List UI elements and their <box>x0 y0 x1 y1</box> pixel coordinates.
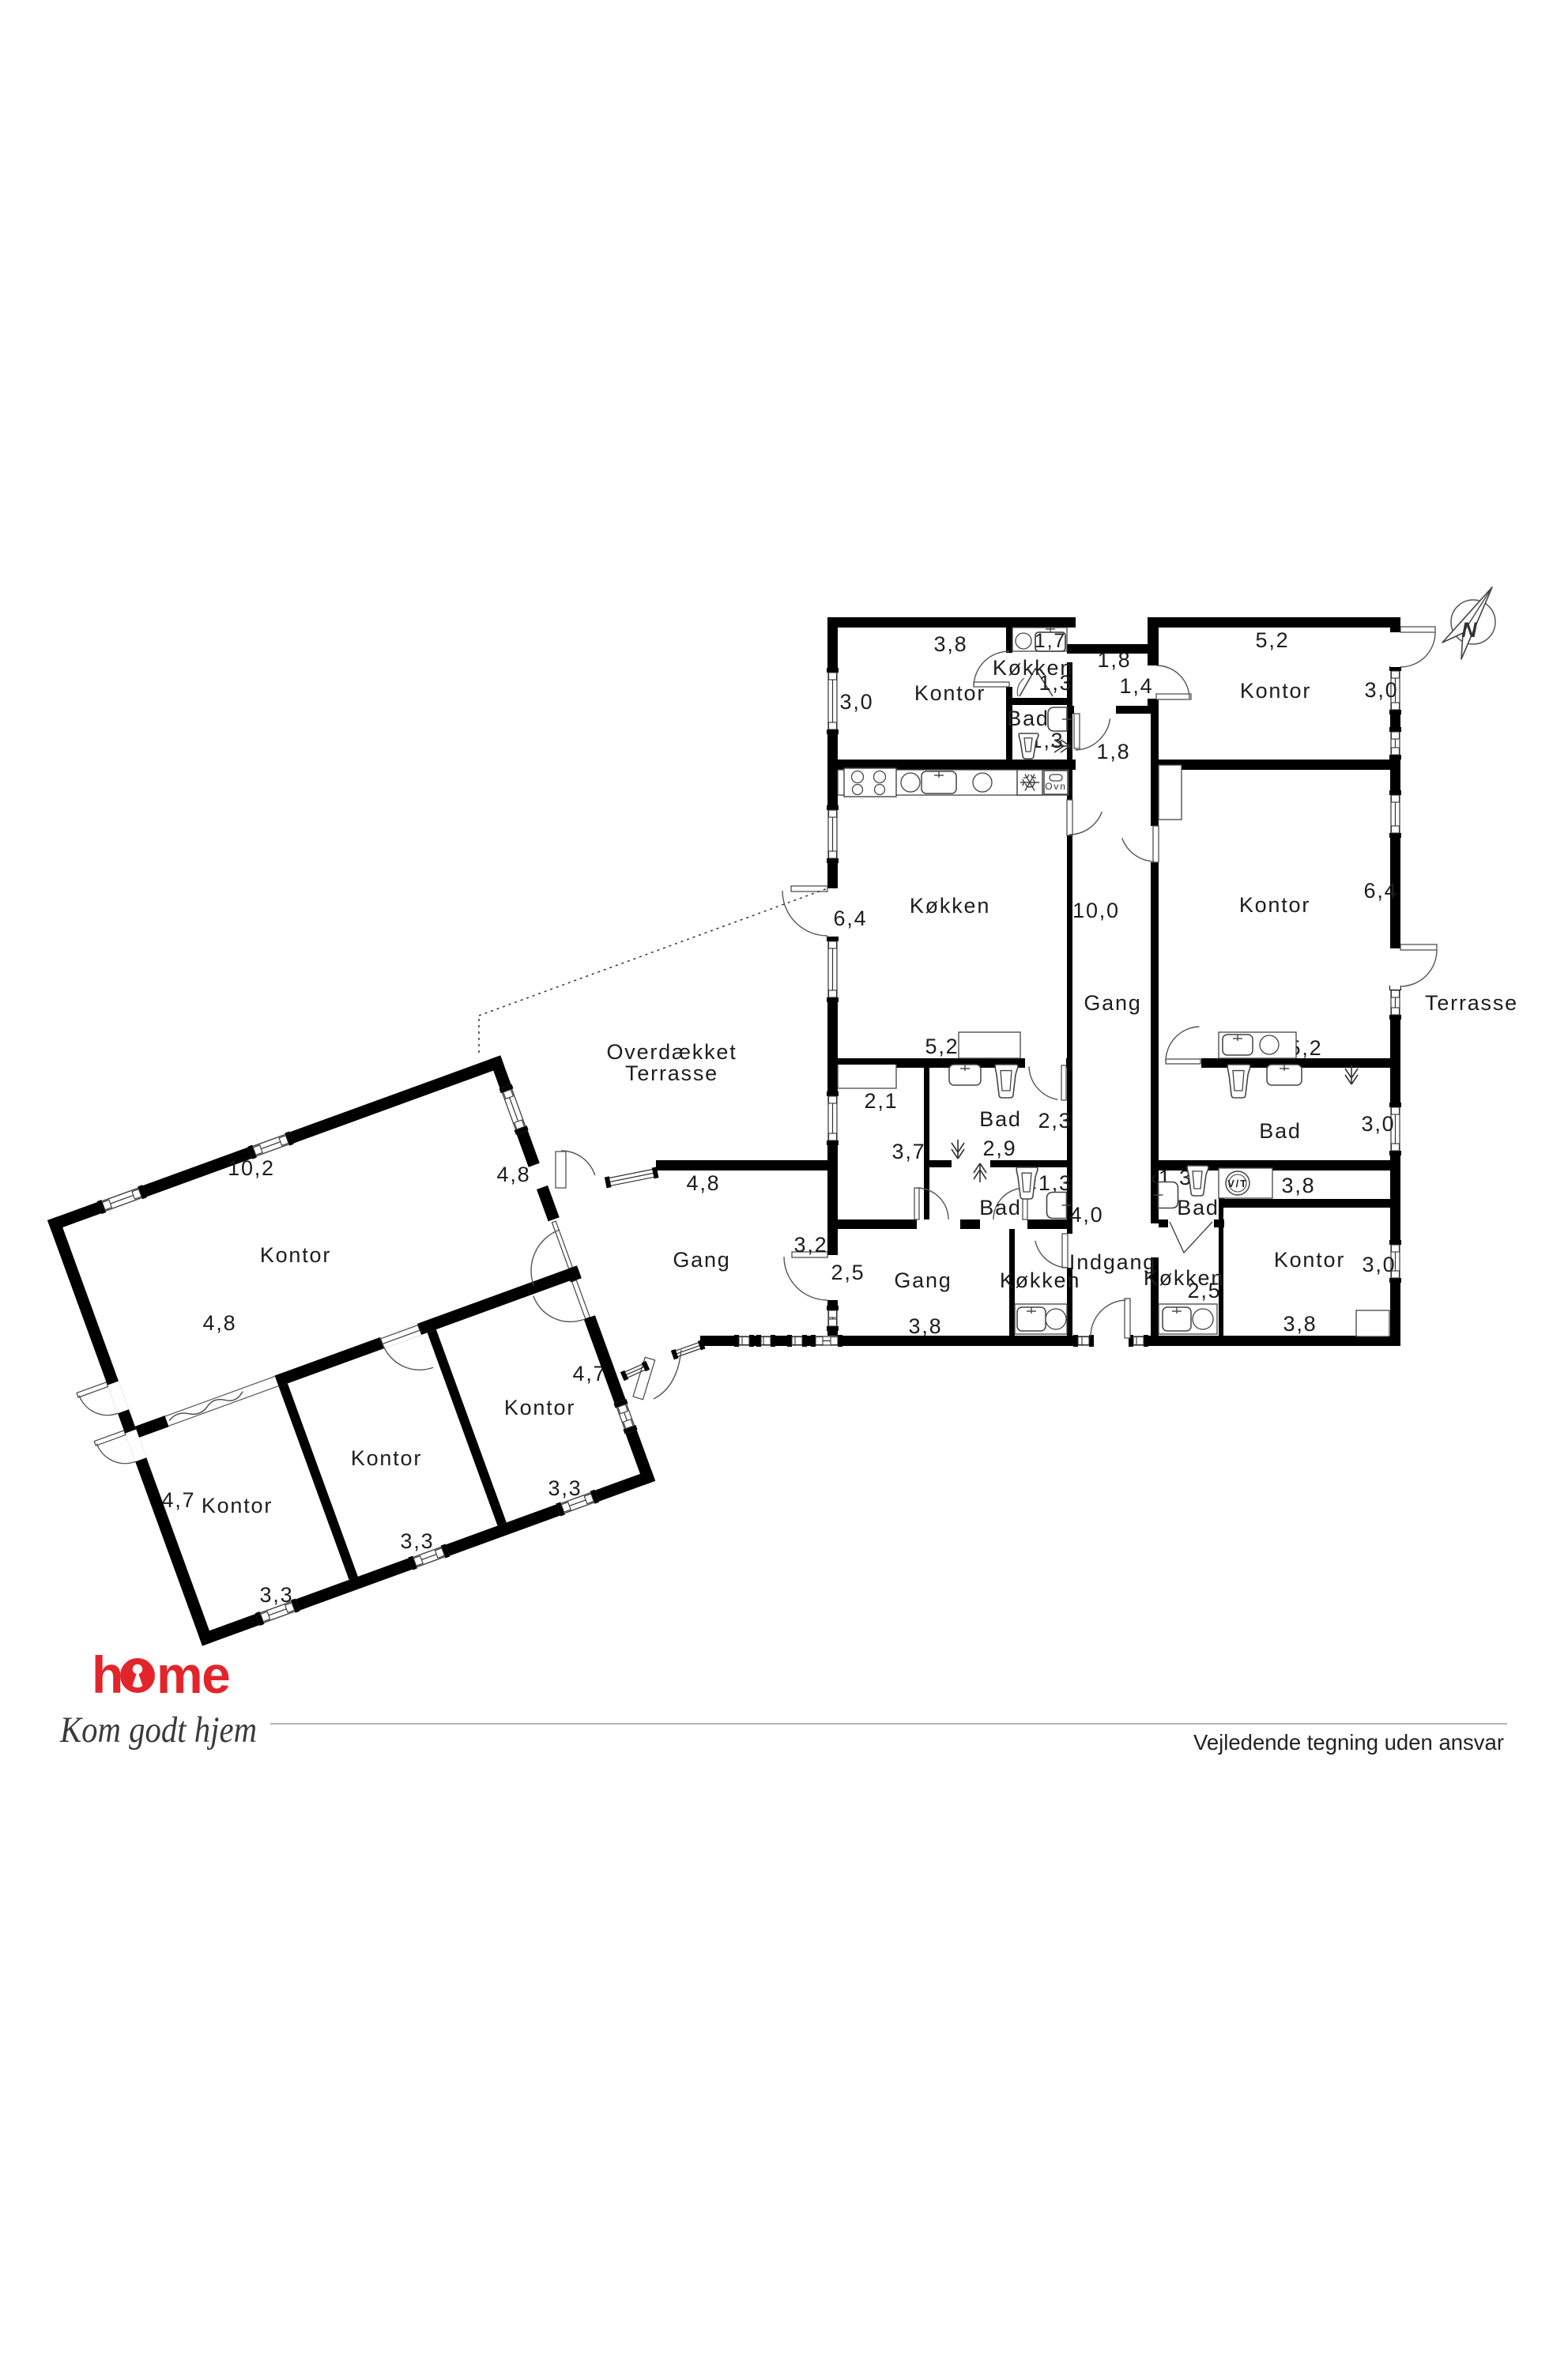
svg-text:Gang: Gang <box>894 1268 952 1292</box>
svg-text:Kontor: Kontor <box>1274 1248 1345 1272</box>
svg-text:2,5: 2,5 <box>1188 1279 1222 1302</box>
svg-text:Gang: Gang <box>673 1248 730 1272</box>
svg-text:1,3: 1,3 <box>1039 671 1073 695</box>
svg-text:4,0: 4,0 <box>1070 1203 1104 1227</box>
svg-text:3,8: 3,8 <box>1282 1174 1316 1197</box>
svg-text:3,7: 3,7 <box>892 1140 926 1163</box>
svg-text:3,8: 3,8 <box>909 1314 943 1338</box>
svg-text:Vejledende tegning uden ansvar: Vejledende tegning uden ansvar <box>1193 1730 1504 1755</box>
svg-text:10,2: 10,2 <box>228 1156 275 1180</box>
svg-text:Bad: Bad <box>1177 1196 1219 1219</box>
svg-text:Overdækket: Overdækket <box>606 1040 737 1064</box>
svg-text:3,0: 3,0 <box>840 690 874 714</box>
svg-text:3,8: 3,8 <box>934 632 968 656</box>
svg-text:4,7: 4,7 <box>162 1488 196 1512</box>
svg-text:6,4: 6,4 <box>834 907 868 930</box>
svg-text:1,4: 1,4 <box>1120 674 1154 698</box>
svg-text:Køkken: Køkken <box>910 894 990 918</box>
svg-text:Terrasse: Terrasse <box>1425 991 1518 1015</box>
svg-text:3,3: 3,3 <box>260 1583 294 1607</box>
svg-text:N: N <box>1461 618 1477 642</box>
svg-text:3,8: 3,8 <box>1283 1312 1317 1336</box>
svg-text:Gang: Gang <box>1084 991 1141 1015</box>
svg-text:Kontor: Kontor <box>504 1396 575 1419</box>
svg-text:3,0: 3,0 <box>1365 678 1399 702</box>
svg-text:Kom godt hjem: Kom godt hjem <box>59 1710 257 1751</box>
svg-text:Bad: Bad <box>1007 707 1049 730</box>
svg-text:Kontor: Kontor <box>1239 893 1310 917</box>
svg-text:me: me <box>156 1645 229 1704</box>
svg-text:2,3: 2,3 <box>1038 1109 1072 1133</box>
svg-text:4,8: 4,8 <box>203 1311 237 1335</box>
svg-text:1,8: 1,8 <box>1097 740 1131 763</box>
svg-text:Kontor: Kontor <box>351 1446 422 1470</box>
svg-text:6,4: 6,4 <box>1364 879 1398 903</box>
svg-text:3,0: 3,0 <box>1362 1112 1396 1136</box>
svg-text:2,1: 2,1 <box>865 1089 899 1113</box>
svg-text:1,7: 1,7 <box>1035 630 1066 652</box>
svg-text:4,8: 4,8 <box>497 1163 531 1186</box>
svg-text:Terrasse: Terrasse <box>625 1061 718 1085</box>
svg-text:1,8: 1,8 <box>1098 648 1132 672</box>
svg-text:V/T: V/T <box>1227 1178 1248 1189</box>
svg-text:10,0: 10,0 <box>1072 899 1120 922</box>
svg-text:Kontor: Kontor <box>914 681 986 705</box>
svg-text:2,5: 2,5 <box>831 1261 865 1284</box>
svg-text:Bad: Bad <box>979 1107 1021 1131</box>
svg-text:Bad: Bad <box>979 1196 1021 1219</box>
svg-text:5,2: 5,2 <box>925 1035 959 1058</box>
svg-text:3,3: 3,3 <box>548 1476 582 1500</box>
svg-text:Køkken: Køkken <box>1000 1268 1080 1292</box>
svg-text:3,0: 3,0 <box>1363 1253 1396 1276</box>
svg-text:Kontor: Kontor <box>1240 679 1311 703</box>
svg-text:3,3: 3,3 <box>401 1529 435 1553</box>
svg-text:5,2: 5,2 <box>1256 628 1290 652</box>
svg-text:2,9: 2,9 <box>983 1137 1017 1160</box>
svg-text:Bad: Bad <box>1259 1119 1301 1143</box>
svg-text:h: h <box>92 1645 123 1704</box>
svg-text:Kontor: Kontor <box>260 1243 331 1267</box>
svg-text:Kontor: Kontor <box>202 1494 273 1517</box>
svg-text:4,8: 4,8 <box>687 1171 721 1195</box>
svg-text:Ovn: Ovn <box>1045 781 1066 792</box>
svg-text:3,2: 3,2 <box>794 1233 828 1257</box>
